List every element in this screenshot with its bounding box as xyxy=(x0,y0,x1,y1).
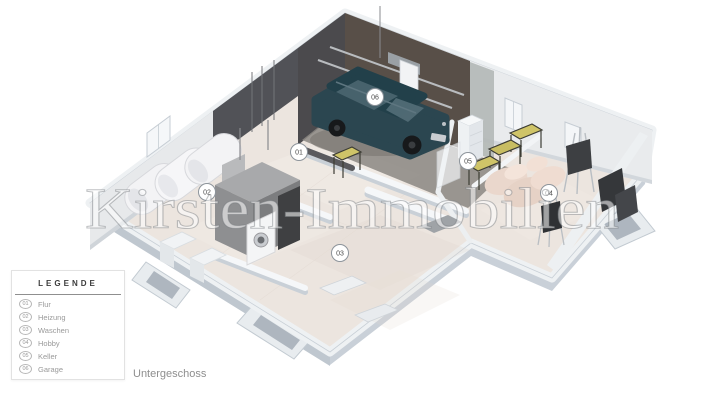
legend-item-label: Flur xyxy=(38,300,51,309)
svg-text:05: 05 xyxy=(464,159,472,166)
room-badge-flur: 01 xyxy=(291,144,308,161)
watermark: Kirsten-Immobilien xyxy=(85,176,619,241)
room-badge-waschen: 03 xyxy=(332,245,349,262)
legend-item-06: 06Garage xyxy=(19,365,124,373)
svg-text:01: 01 xyxy=(295,150,303,157)
legend-item-number: 04 xyxy=(19,338,32,348)
legend-item-01: 01Flur xyxy=(19,300,124,308)
legend-title: LEGENDE xyxy=(12,279,124,288)
legend-item-03: 03Waschen xyxy=(19,326,124,334)
room-badge-keller: 05 xyxy=(460,153,477,170)
svg-text:06: 06 xyxy=(371,95,379,102)
legend-item-label: Garage xyxy=(38,365,63,374)
floor-level-caption: Untergeschoss xyxy=(133,368,206,380)
legend-item-04: 04Hobby xyxy=(19,339,124,347)
room-badge-garage: 06 xyxy=(367,89,384,106)
legend-item-label: Heizung xyxy=(38,313,66,322)
legend-item-number: 03 xyxy=(19,325,32,335)
legend-item-label: Hobby xyxy=(38,339,60,348)
legend-item-label: Waschen xyxy=(38,326,69,335)
screenshot-root: 010203040506 Kirsten-Immobilien LEGENDE … xyxy=(0,0,710,400)
legend-item-05: 05Keller xyxy=(19,352,124,360)
legend-item-02: 02Heizung xyxy=(19,313,124,321)
legend-items: 01Flur02Heizung03Waschen04Hobby05Keller0… xyxy=(12,300,124,373)
legend-item-number: 05 xyxy=(19,351,32,361)
svg-text:03: 03 xyxy=(336,251,344,258)
legend-item-number: 02 xyxy=(19,312,32,322)
legend-panel: LEGENDE 01Flur02Heizung03Waschen04Hobby0… xyxy=(11,270,125,380)
legend-item-number: 01 xyxy=(19,299,32,309)
legend-divider xyxy=(15,294,121,295)
legend-item-number: 06 xyxy=(19,364,32,374)
legend-item-label: Keller xyxy=(38,352,57,361)
